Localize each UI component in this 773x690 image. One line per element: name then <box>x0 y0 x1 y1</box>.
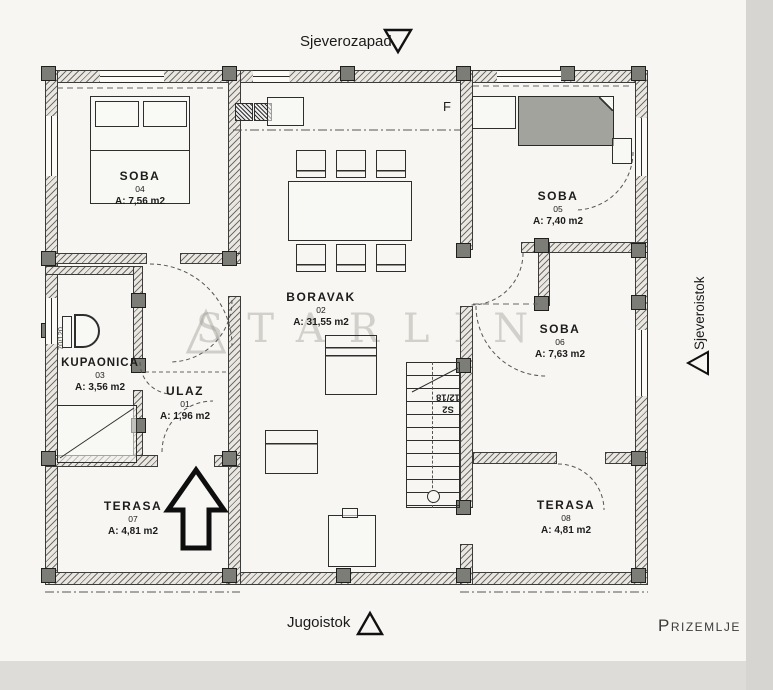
stairs-annotation-line1: S2 <box>426 402 470 414</box>
chair <box>328 515 376 567</box>
stair-center-line <box>432 362 433 508</box>
triangle-left-icon <box>688 352 708 374</box>
scan-edge-bottom <box>0 661 746 690</box>
wall-segment <box>228 70 241 260</box>
wall-segment <box>473 452 557 464</box>
chair <box>376 150 406 178</box>
toilet <box>74 314 100 348</box>
blanket-line <box>90 150 190 151</box>
hob <box>235 103 253 121</box>
scan-edge-right <box>746 0 773 690</box>
kitchen-counter <box>267 97 304 126</box>
room-number: 05 <box>502 205 614 215</box>
column-marker <box>631 568 646 583</box>
column-marker <box>534 296 549 311</box>
room-area: A: 31,55 m2 <box>262 317 380 329</box>
door-arc <box>471 253 523 305</box>
room-number: 08 <box>510 514 622 524</box>
room-area: A: 4,81 m2 <box>77 526 189 538</box>
column-marker <box>41 66 56 81</box>
room-label-soba-04: SOBA 04 A: 7,56 m2 <box>84 170 196 207</box>
column-marker <box>456 568 471 583</box>
room-label-soba-06: SOBA 06 A: 7,63 m2 <box>504 323 616 360</box>
dining-table <box>288 181 412 241</box>
room-area: A: 7,56 m2 <box>84 196 196 208</box>
window-symbol <box>635 118 648 176</box>
tv-bench <box>265 430 318 474</box>
stair-landing-circle <box>427 490 440 503</box>
column-marker <box>560 66 575 81</box>
column-marker <box>631 243 646 258</box>
column-marker <box>456 66 471 81</box>
orientation-label-northeast: Sjeveroistok <box>692 240 707 350</box>
bathtub <box>57 405 137 463</box>
column-marker <box>222 568 237 583</box>
window-symbol <box>253 70 289 83</box>
column-marker <box>222 66 237 81</box>
room-number: 02 <box>262 306 380 316</box>
wardrobe <box>472 96 516 129</box>
room-number: 03 <box>44 371 156 381</box>
wall-segment <box>133 266 143 360</box>
room-name: TERASA <box>77 500 189 514</box>
column-marker <box>41 568 56 583</box>
wall-segment <box>45 253 147 264</box>
room-area: A: 4,81 m2 <box>510 525 622 537</box>
grid-axis-label: F <box>443 99 451 114</box>
chair <box>336 150 366 178</box>
column-marker <box>131 293 146 308</box>
column-marker <box>631 451 646 466</box>
column-marker <box>336 568 351 583</box>
room-area: A: 1,96 m2 <box>146 411 224 423</box>
room-name: SOBA <box>502 190 614 204</box>
room-number: 04 <box>84 185 196 195</box>
room-name: SOBA <box>84 170 196 184</box>
orientation-label-northwest: Sjeverozapad <box>300 33 392 50</box>
room-area: A: 3,56 m2 <box>44 382 156 394</box>
room-number: 07 <box>77 515 189 525</box>
room-name: ULAZ <box>146 385 224 399</box>
pillow <box>95 101 139 127</box>
column-marker <box>222 251 237 266</box>
floor-title: Prizemlje <box>658 616 741 636</box>
room-area: A: 7,63 m2 <box>504 349 616 361</box>
column-marker <box>456 243 471 258</box>
room-label-boravak: BORAVAK 02 A: 31,55 m2 <box>262 291 380 328</box>
window-symbol <box>100 70 164 83</box>
column-marker <box>222 451 237 466</box>
column-marker <box>340 66 355 81</box>
window-symbol <box>635 330 648 396</box>
chair <box>296 150 326 178</box>
chair-back <box>342 508 358 518</box>
room-label-terasa-08: TERASA 08 A: 4,81 m2 <box>510 499 622 536</box>
floor-plan-scan: STARLIN <box>0 0 773 690</box>
window-symbol <box>45 116 58 176</box>
bed-fold-corner <box>599 97 613 111</box>
room-number: 01 <box>146 400 224 410</box>
column-marker <box>534 238 549 253</box>
room-name: SOBA <box>504 323 616 337</box>
room-area: A: 7,40 m2 <box>502 216 614 228</box>
triangle-up-icon <box>358 613 382 634</box>
column-marker <box>631 66 646 81</box>
wall-segment <box>45 266 143 275</box>
chair <box>336 244 366 272</box>
window-symbol <box>497 70 561 83</box>
stairs-annotation-line2: 12/18 <box>426 390 470 402</box>
column-marker <box>41 451 56 466</box>
armchair <box>325 335 377 395</box>
room-name: TERASA <box>510 499 622 513</box>
chair <box>296 244 326 272</box>
wall-segment <box>228 296 241 585</box>
room-label-terasa-07: TERASA 07 A: 4,81 m2 <box>77 500 189 537</box>
room-name: KUPAONICA <box>44 357 156 370</box>
room-label-ulaz: ULAZ 01 A: 1,96 m2 <box>146 385 224 422</box>
chair <box>376 244 406 272</box>
column-marker <box>631 295 646 310</box>
bathtub-dimension-label: 70/120 <box>56 312 65 350</box>
staircase <box>406 362 460 508</box>
stairs-annotation: S2 12/18 <box>426 390 470 415</box>
pillow <box>143 101 187 127</box>
room-label-kupaonica: KUPAONICA 03 A: 3,56 m2 <box>44 357 156 393</box>
room-number: 06 <box>504 338 616 348</box>
column-marker <box>41 251 56 266</box>
room-label-soba-05: SOBA 05 A: 7,40 m2 <box>502 190 614 227</box>
room-name: BORAVAK <box>262 291 380 305</box>
nightstand <box>612 138 632 164</box>
orientation-label-southeast: Jugoistok <box>287 614 350 631</box>
